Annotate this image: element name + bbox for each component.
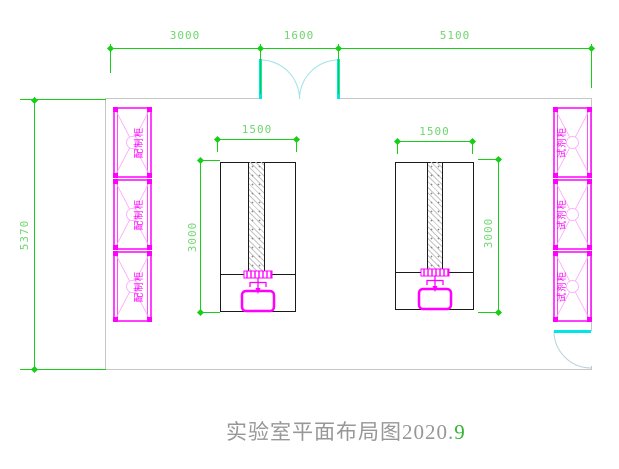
dim-arrow <box>495 309 502 316</box>
wall-bottom <box>105 369 592 370</box>
dimension-line-left <box>34 97 35 372</box>
top-double-door-icon <box>258 57 342 101</box>
dim-arrow <box>394 138 401 145</box>
dim-arrow <box>31 366 38 373</box>
dim-arrow <box>335 45 342 52</box>
dim-arrow <box>107 45 114 52</box>
side-door-icon <box>550 327 594 371</box>
dim-text-top-door: 1600 <box>264 29 334 42</box>
dimension-line-bench-depth <box>200 160 201 313</box>
bench-hatch-strip <box>427 162 443 273</box>
cabinet-left-label: 配制柜 <box>133 107 146 178</box>
dimension-line-bench-width <box>397 141 472 142</box>
cabinet-left-label: 配制柜 <box>133 251 146 322</box>
wall-left <box>105 98 106 370</box>
dim-arrow <box>214 136 221 143</box>
cabinet-right-label: 试剂柜 <box>556 107 569 178</box>
drawing-title: 实验室平面布局图2020.9 <box>226 416 466 446</box>
dim-arrow <box>469 138 476 145</box>
drawing-title-main: 实验室平面布局图2020. <box>226 420 454 444</box>
dimension-line-bench-width <box>217 139 297 140</box>
floor-plan-drawing: 3000 1600 5100 5370 1500 3000 <box>0 0 619 469</box>
bench-hatch-strip <box>248 162 265 275</box>
cabinet-left-label: 配制柜 <box>133 179 146 250</box>
dim-text-bench-depth: 3000 <box>186 206 199 268</box>
dim-text-top-right: 5100 <box>420 29 490 42</box>
dim-arrow <box>588 45 595 52</box>
dim-text-room-depth: 5370 <box>18 204 31 266</box>
extension-line <box>203 160 220 161</box>
dimension-line-bench-depth <box>498 159 499 312</box>
extension-line <box>203 312 220 313</box>
dim-arrow <box>257 45 264 52</box>
sink-symbol <box>415 265 455 311</box>
dimension-line-top <box>110 48 592 49</box>
drawing-title-suffix: 9 <box>454 420 466 444</box>
cabinet-right-label: 试剂柜 <box>556 179 569 250</box>
dim-arrow <box>495 156 502 163</box>
dim-text-top-left: 3000 <box>150 29 220 42</box>
dim-arrow <box>293 136 300 143</box>
dim-text-bench-width: 1500 <box>217 123 297 136</box>
cabinet-right-label: 试剂柜 <box>556 251 569 322</box>
wall-top-left <box>105 98 260 99</box>
dim-text-bench-width: 1500 <box>397 125 472 138</box>
dim-arrow <box>197 157 204 164</box>
dim-text-bench-depth: 3000 <box>482 202 495 264</box>
sink-symbol <box>238 267 278 313</box>
wall-top-right <box>338 98 592 99</box>
dim-arrow <box>197 309 204 316</box>
